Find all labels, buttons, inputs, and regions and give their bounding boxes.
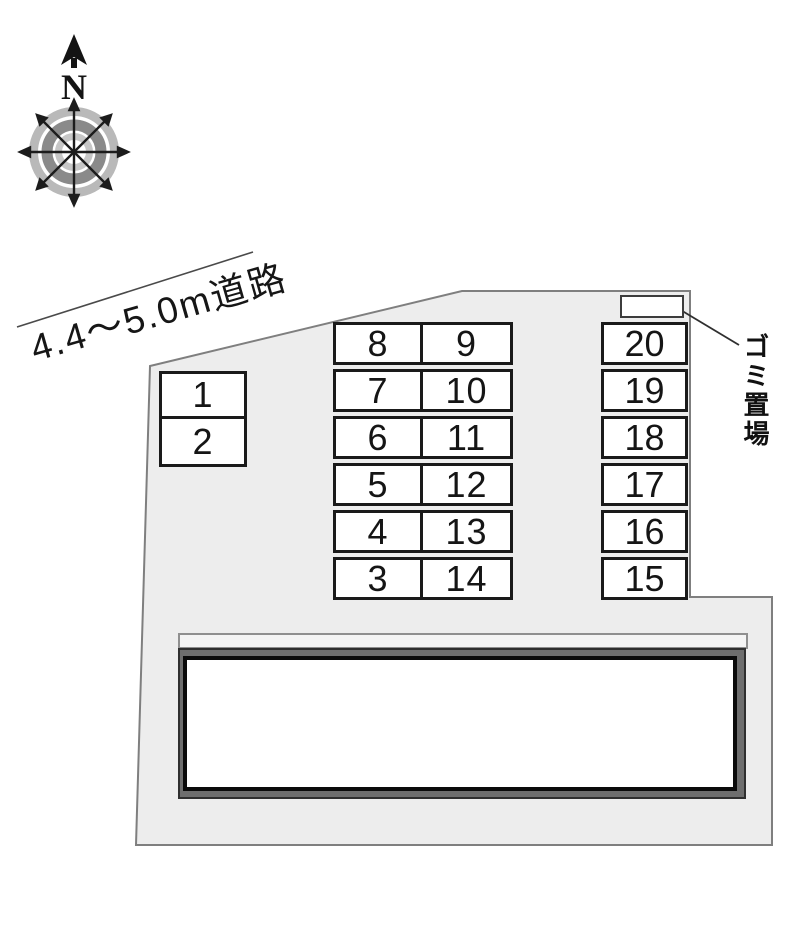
compass-rose: N xyxy=(20,34,128,205)
parking-space: 11 xyxy=(423,419,510,456)
parking-space: 5 xyxy=(336,466,423,503)
parking-row: 6 11 xyxy=(333,416,513,459)
north-arrow-icon xyxy=(61,34,87,68)
parking-row: 3 14 xyxy=(333,557,513,600)
parking-space: 18 xyxy=(601,416,688,459)
parking-row: 4 13 xyxy=(333,510,513,553)
compass-spokes xyxy=(20,100,128,205)
parking-space: 1 xyxy=(162,374,244,419)
parking-space: 7 xyxy=(336,372,423,409)
parking-space: 10 xyxy=(423,372,510,409)
garbage-area-label: ゴミ置場 xyxy=(737,333,774,463)
site-plan: N 4.4～5.0m道路 1 2 8 9 7 10 6 11 5 12 4 13 xyxy=(0,0,800,940)
parking-space: 19 xyxy=(601,369,688,412)
parking-row: 5 12 xyxy=(333,463,513,506)
parking-space: 15 xyxy=(601,557,688,600)
parking-space: 16 xyxy=(601,510,688,553)
parking-space: 20 xyxy=(601,322,688,365)
parking-row: 8 9 xyxy=(333,322,513,365)
parking-row: 7 10 xyxy=(333,369,513,412)
parking-space: 3 xyxy=(336,560,423,597)
parking-space: 4 xyxy=(336,513,423,550)
parking-space: 2 xyxy=(162,419,244,464)
building-interior xyxy=(183,656,737,791)
parking-space: 12 xyxy=(423,466,510,503)
parking-block-1-2: 1 2 xyxy=(159,371,247,467)
parking-space: 9 xyxy=(423,325,510,362)
parking-space: 17 xyxy=(601,463,688,506)
building-slab-edge xyxy=(178,633,748,649)
parking-space: 6 xyxy=(336,419,423,456)
parking-space: 8 xyxy=(336,325,423,362)
north-label: N xyxy=(61,67,87,107)
garbage-area-box xyxy=(620,295,684,318)
parking-space: 14 xyxy=(423,560,510,597)
parking-space: 13 xyxy=(423,513,510,550)
